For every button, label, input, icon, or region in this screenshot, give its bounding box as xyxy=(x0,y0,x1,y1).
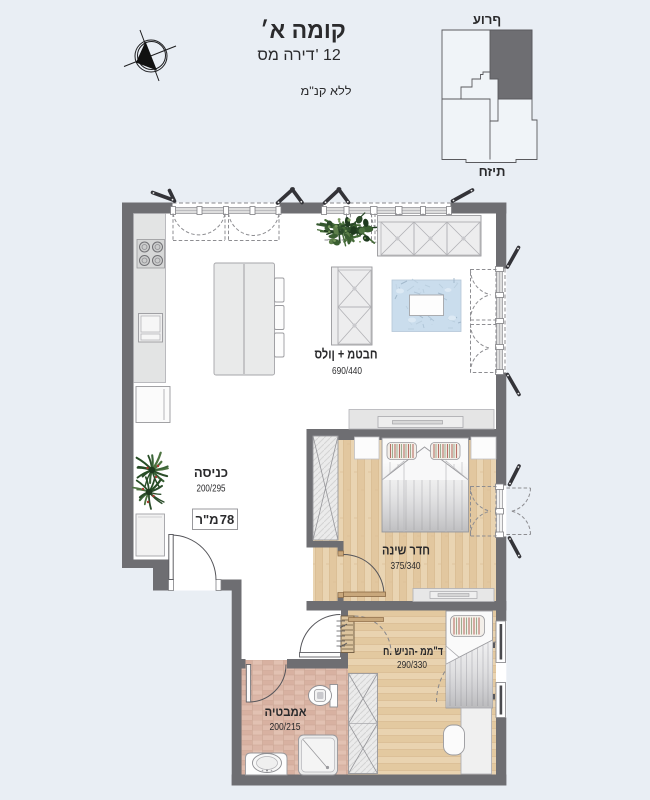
svg-text:חבטמ + ןולס: חבטמ + ןולס xyxy=(315,347,378,362)
svg-text:חדר שינה: חדר שינה xyxy=(382,543,430,558)
svg-text:תיזח: תיזח xyxy=(479,164,506,179)
svg-text:690/440: 690/440 xyxy=(332,365,362,377)
svg-text:ףרוע: ףרוע xyxy=(473,12,501,27)
svg-text:קומה א׳: קומה א׳ xyxy=(260,17,346,43)
svg-text:דירה מס: דירה מס xyxy=(257,47,314,64)
svg-text:200/215: 200/215 xyxy=(270,722,301,733)
svg-text:200/295: 200/295 xyxy=(197,483,226,495)
svg-text:ללא קנ"מ: ללא קנ"מ xyxy=(301,85,352,98)
svg-text:375/340: 375/340 xyxy=(391,560,421,572)
svg-text:290/330: 290/330 xyxy=(397,660,427,671)
svg-text:כניסה: כניסה xyxy=(194,465,228,480)
svg-text:ד"ממ -הניש .ח: ד"ממ -הניש .ח xyxy=(383,646,443,658)
svg-text:78: 78 xyxy=(220,512,234,527)
svg-text:' 12: ' 12 xyxy=(316,47,341,64)
svg-text:אמבטיה: אמבטיה xyxy=(265,705,307,719)
svg-text:מ"ר: מ"ר xyxy=(195,512,218,527)
